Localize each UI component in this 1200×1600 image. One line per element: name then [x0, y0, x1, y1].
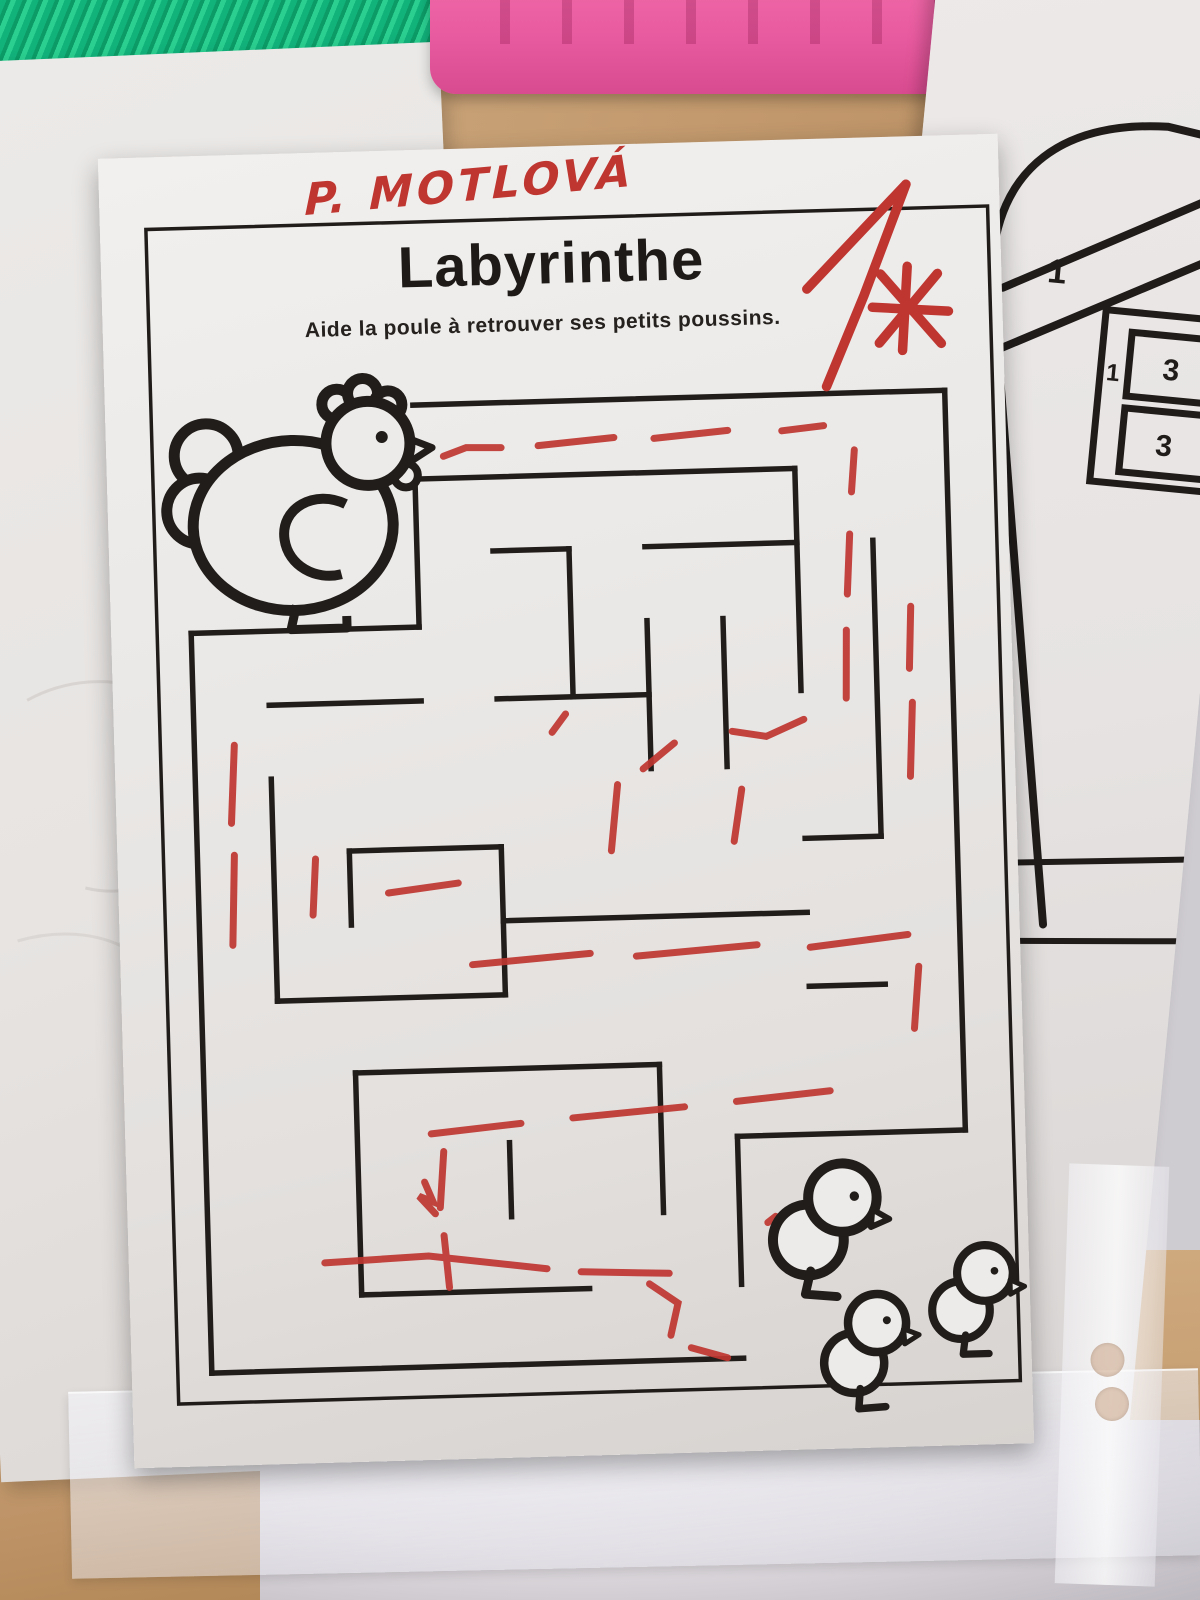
maze-wall [493, 549, 569, 551]
maze-wall [415, 468, 795, 479]
red-pen-stroke [846, 534, 852, 594]
chick-illustration [819, 1291, 925, 1411]
maze-wall [805, 836, 881, 838]
maze-wall [271, 779, 277, 1001]
maze-wall [569, 549, 573, 697]
page-frame [146, 206, 1020, 1404]
chick-head [846, 1292, 908, 1354]
maze-wall [503, 912, 807, 920]
red-pen-stroke [439, 1152, 446, 1208]
red-pen-stroke [419, 1182, 436, 1214]
maze-wall [413, 390, 945, 405]
hen-illustration [163, 377, 437, 633]
maze-wall [277, 995, 505, 1001]
chick-beak [904, 1328, 920, 1344]
chick-head [806, 1161, 879, 1234]
template-diagonal-1 [1003, 160, 1200, 310]
red-pen-stroke [552, 714, 566, 732]
red-pen-stroke [733, 789, 743, 841]
red-pen-stroke [844, 630, 848, 698]
maze-wall [723, 619, 727, 767]
red-pen-stroke [736, 1091, 830, 1102]
maze-wall [212, 1358, 744, 1373]
template-arch [992, 111, 1200, 288]
maze-wall [945, 390, 966, 1130]
maze-wall [659, 1064, 663, 1212]
template-label-one-big: 1 [1046, 252, 1068, 292]
red-pen-stroke [388, 883, 458, 893]
red-pen-stroke [538, 438, 614, 446]
template-label-three-top: 3 [1161, 353, 1181, 387]
maze-wall [349, 851, 351, 925]
maze-wall [873, 540, 881, 836]
binder-hole [1094, 1386, 1129, 1421]
red-pen-stroke [810, 935, 908, 948]
maze-wall [737, 1136, 741, 1284]
template-label-one-small: 1 [1105, 359, 1121, 387]
grade-stroke [804, 184, 909, 289]
maze-wall [191, 633, 212, 1373]
maze-wall [497, 695, 649, 699]
maze-wall [510, 1143, 512, 1217]
red-pen-stroke [650, 1283, 679, 1336]
red-pen-stroke [732, 719, 804, 737]
red-pen-stroke [913, 966, 921, 1028]
maze-worksheet: P. MOTLOVÁ Labyrinthe Aide la poule à re… [98, 134, 1034, 1469]
maze-wall [269, 701, 421, 705]
hen-head [325, 400, 411, 486]
grade-stroke [821, 184, 912, 386]
chicks-group [765, 1152, 1028, 1413]
red-pen-stroke [636, 945, 757, 956]
chick-illustration [930, 1244, 1026, 1355]
chick-beak [1010, 1280, 1025, 1295]
maze-wall [415, 479, 419, 627]
red-pen-stroke [229, 745, 236, 823]
red-pen-stroke [850, 450, 855, 492]
red-pen-stroke [573, 1107, 685, 1118]
maze-wall [362, 1289, 590, 1295]
maze-wall [349, 847, 501, 851]
chick-illustration [769, 1158, 893, 1300]
chick-head [956, 1244, 1013, 1301]
red-pen-stroke [782, 426, 824, 431]
maze-wall [356, 1064, 660, 1072]
maze-figure [98, 134, 1034, 1469]
red-pen-stroke [908, 606, 913, 668]
red-pen-stroke [642, 743, 675, 769]
template-label-three-bottom: 3 [1154, 429, 1174, 463]
maze-wall [795, 468, 801, 690]
red-pen-stroke [312, 859, 318, 915]
plastic-sleeve-strip [1055, 1163, 1170, 1586]
maze-wall [645, 542, 797, 546]
red-pen-stroke [472, 953, 590, 964]
red-pen-stroke [443, 447, 501, 457]
grade-mark-one-star [804, 183, 951, 387]
red-pen-stroke [431, 1123, 521, 1134]
maze-wall [737, 1130, 965, 1136]
red-pen-stroke [908, 702, 914, 776]
chick-beak [871, 1209, 890, 1228]
maze-wall [809, 984, 885, 986]
pencil-case-ridges [448, 0, 997, 44]
red-pen-stroke [230, 855, 237, 945]
binder-hole [1090, 1342, 1125, 1377]
red-pen-stroke [610, 785, 620, 851]
red-pen-stroke [581, 1269, 669, 1275]
red-pen-stroke [654, 430, 728, 438]
